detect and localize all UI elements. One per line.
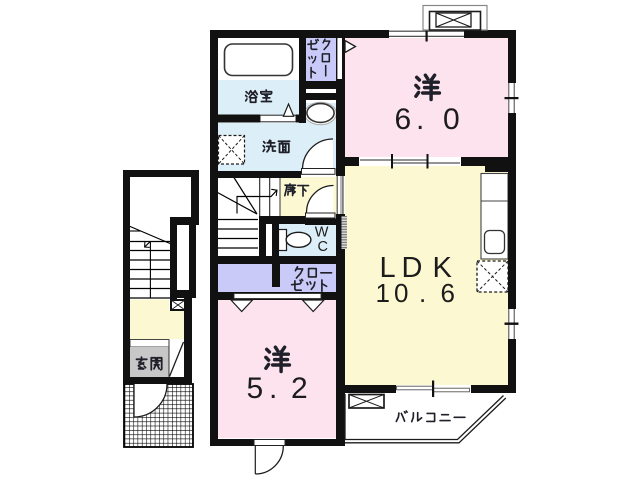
svg-text:C: C [318,239,328,255]
svg-text:.: . [416,103,424,136]
svg-text:.: . [419,278,426,308]
svg-text:.: . [269,372,277,405]
svg-text:5: 5 [247,372,264,405]
svg-text:6: 6 [441,278,455,308]
svg-text:1: 1 [376,278,390,308]
svg-text:0: 0 [394,278,408,308]
svg-text:0: 0 [443,103,460,136]
svg-text:2: 2 [291,372,308,405]
svg-text:6: 6 [395,103,412,136]
